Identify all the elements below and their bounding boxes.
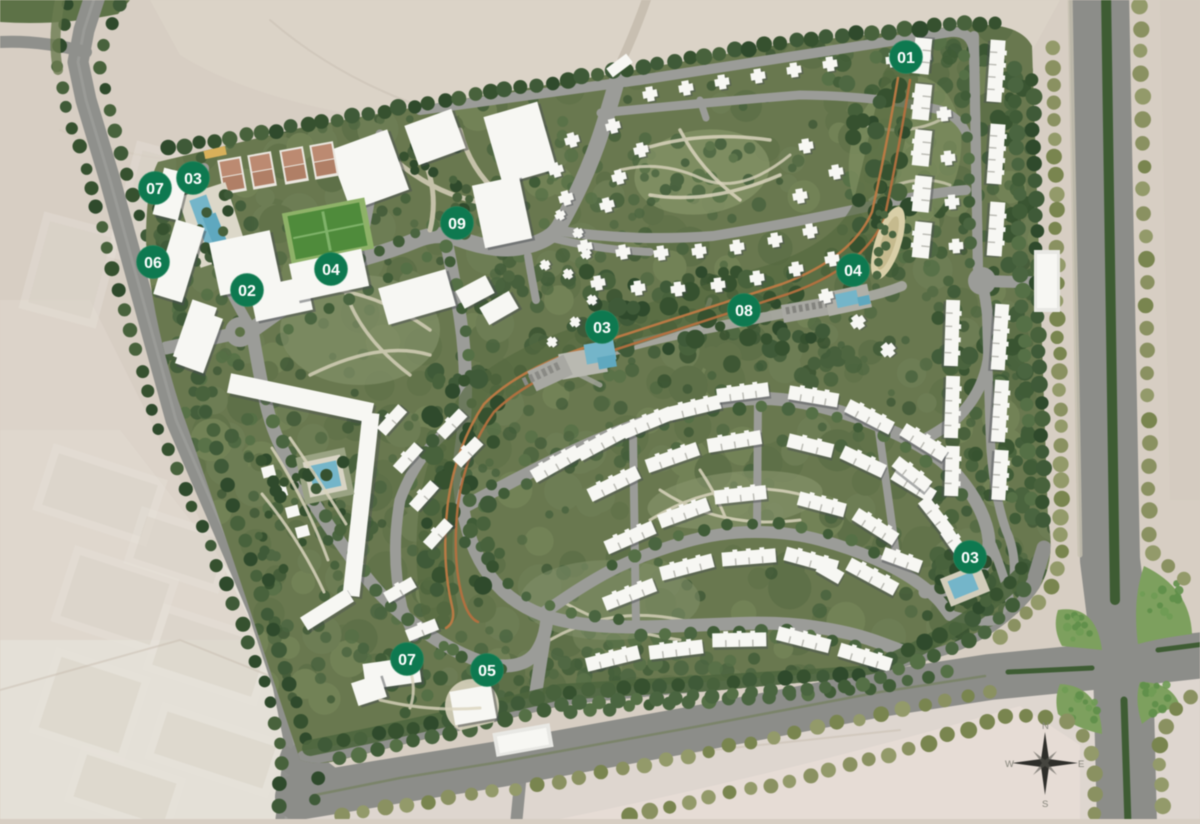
svg-text:E: E [1078, 759, 1084, 770]
svg-text:S: S [1042, 799, 1048, 810]
svg-text:04: 04 [322, 262, 340, 279]
svg-text:W: W [1005, 759, 1014, 770]
svg-text:05: 05 [478, 663, 496, 680]
svg-text:06: 06 [144, 255, 162, 272]
svg-text:02: 02 [238, 283, 256, 300]
svg-text:N: N [1042, 721, 1049, 732]
svg-text:03: 03 [184, 171, 202, 188]
svg-text:07: 07 [398, 652, 416, 669]
svg-text:03: 03 [593, 320, 611, 337]
svg-text:01: 01 [897, 50, 915, 67]
svg-text:07: 07 [146, 181, 164, 198]
svg-text:04: 04 [844, 263, 862, 280]
svg-text:03: 03 [961, 550, 979, 567]
svg-text:08: 08 [735, 303, 753, 320]
svg-text:09: 09 [448, 216, 466, 233]
